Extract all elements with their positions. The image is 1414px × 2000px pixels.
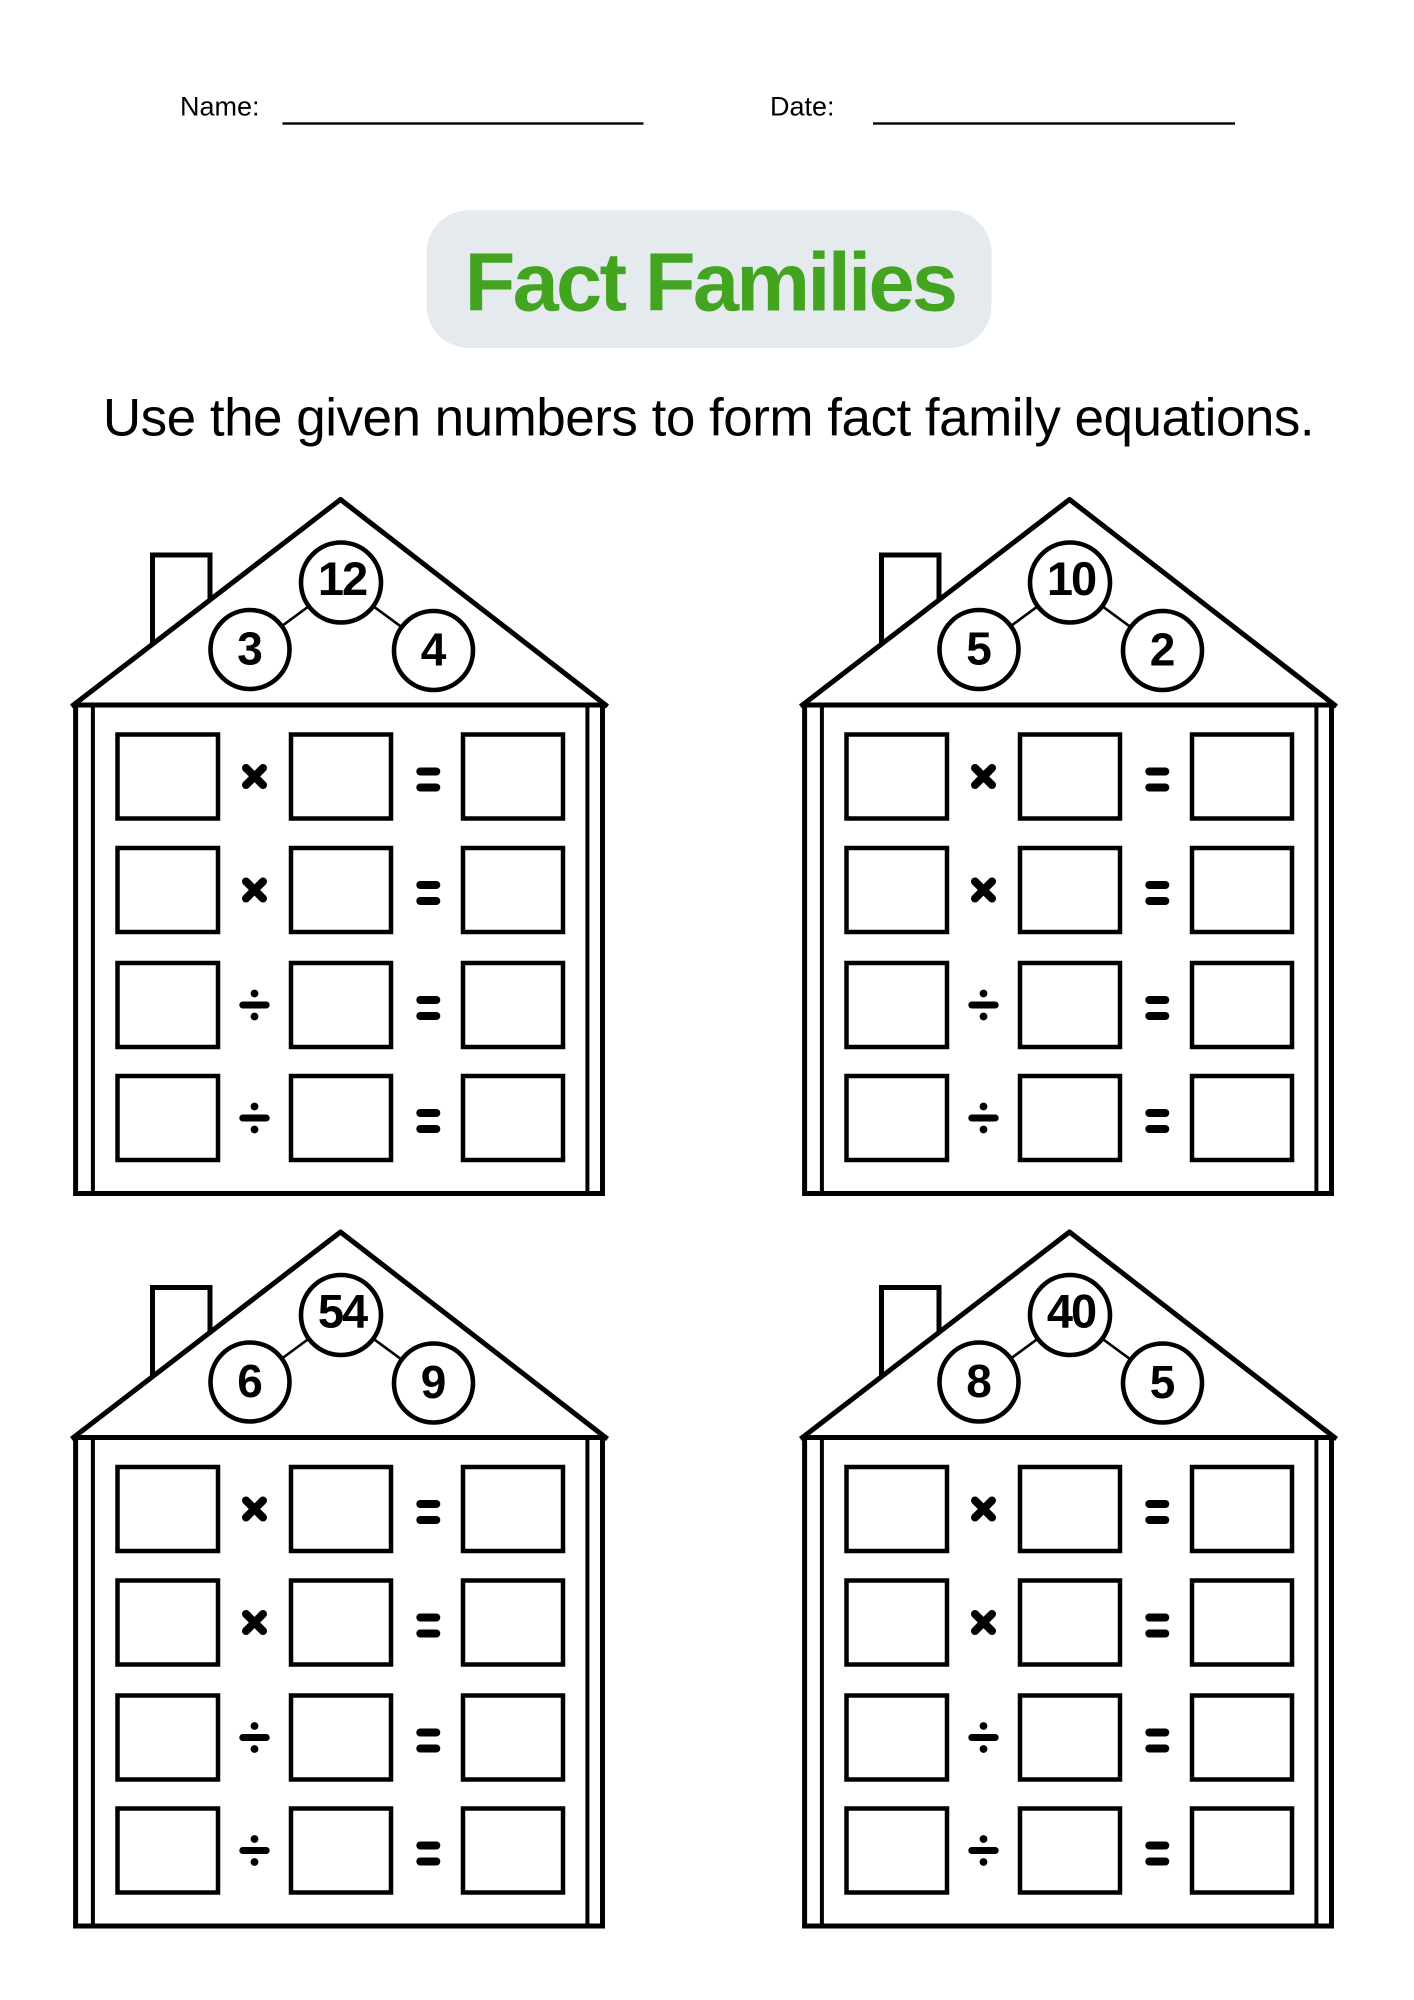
svg-text:10: 10 — [1047, 552, 1096, 605]
svg-text:Name:: Name: — [180, 92, 260, 122]
svg-text:54: 54 — [318, 1285, 368, 1338]
svg-text:40: 40 — [1047, 1285, 1096, 1338]
svg-text:6: 6 — [237, 1355, 263, 1407]
svg-text:3: 3 — [237, 623, 263, 675]
svg-text:Fact Families: Fact Families — [465, 236, 956, 329]
svg-text:9: 9 — [421, 1356, 447, 1408]
svg-text:2: 2 — [1150, 624, 1176, 676]
svg-text:8: 8 — [966, 1355, 992, 1407]
svg-text:12: 12 — [318, 552, 367, 605]
svg-text:5: 5 — [966, 623, 992, 675]
svg-text:4: 4 — [421, 624, 447, 676]
svg-text:Date:: Date: — [770, 92, 835, 122]
svg-text:5: 5 — [1150, 1356, 1176, 1408]
svg-text:Use the given numbers to form: Use the given numbers to form fact famil… — [103, 388, 1314, 447]
